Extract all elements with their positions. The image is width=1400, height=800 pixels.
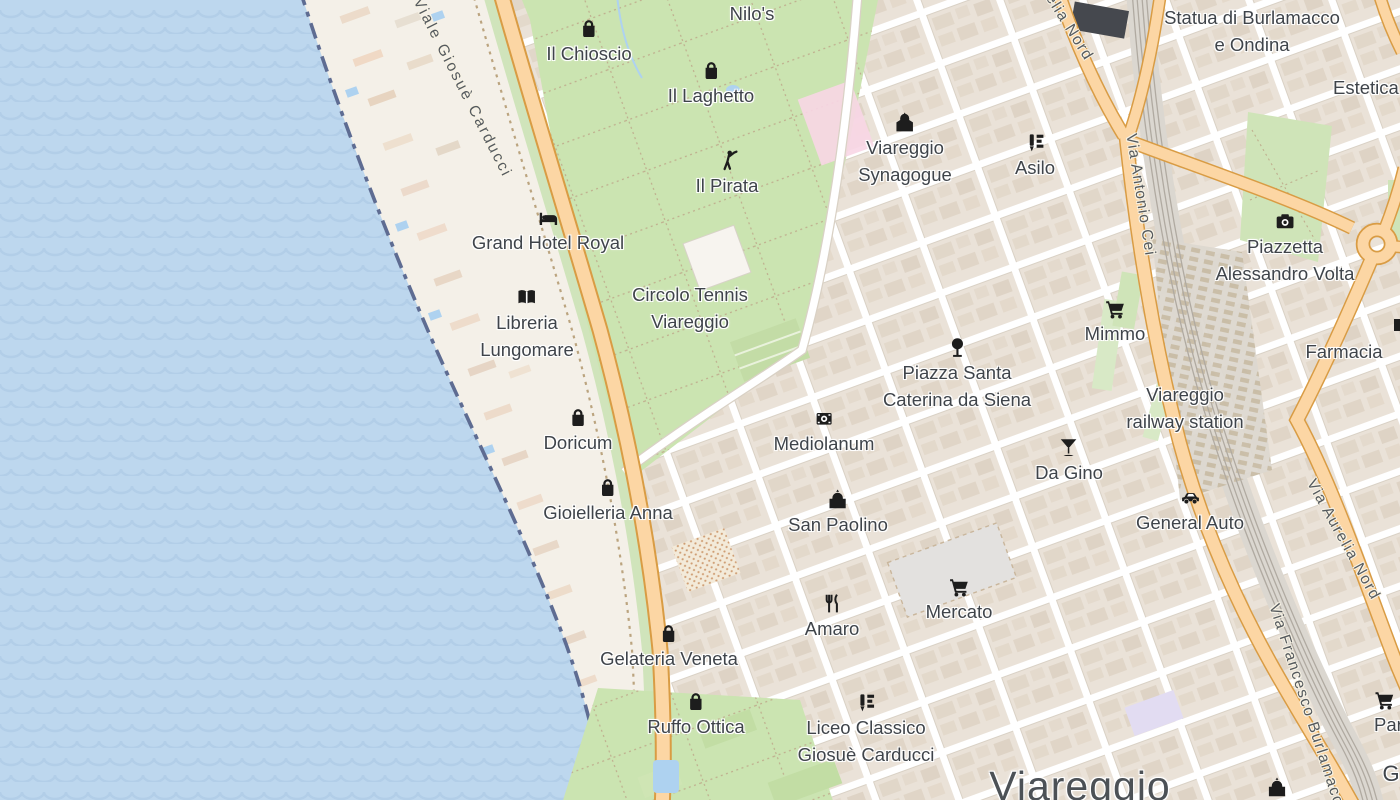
cart-icon	[1374, 689, 1395, 710]
road-label-via-antonio-cei: Via Antonio Cei	[1121, 132, 1158, 257]
shopping-bag-icon	[568, 407, 589, 428]
poi-line: Mediolanum	[774, 430, 875, 457]
poi-gelateria-veneta: Gelateria Veneta	[600, 623, 738, 672]
book-icon	[517, 287, 538, 308]
poi-line: Piazzetta	[1247, 233, 1323, 260]
poi-par-partial: Par	[1374, 689, 1400, 738]
poi-g-partial: G	[1382, 760, 1399, 787]
poi-piazza-caterina: Piazza SantaCaterina da Siena	[883, 337, 1031, 413]
poi-line: Farmacia	[1305, 338, 1382, 365]
road-label-via-francesco-burlamacchi: Via Francesco Burlamacchi	[1265, 602, 1352, 800]
poi-line: Il Chioscio	[546, 40, 631, 67]
poi-line: Gioielleria Anna	[543, 499, 673, 526]
poi-line: Asilo	[1015, 154, 1055, 181]
bank-icon	[814, 408, 835, 429]
church-icon	[1267, 777, 1288, 798]
poi-line: Par	[1374, 711, 1400, 738]
poi-gioielleria-anna: Gioielleria Anna	[543, 477, 673, 526]
poi-line: Piazza Santa	[902, 359, 1011, 386]
poi-line: Da Gino	[1035, 459, 1103, 486]
poi-line: G	[1382, 760, 1399, 787]
poi-church-bottom	[1267, 777, 1288, 799]
poi-mimmo: Mimmo	[1085, 298, 1146, 347]
poi-il-laghetto: Il Laghetto	[668, 60, 754, 109]
shopping-bag-icon	[658, 623, 679, 644]
tree-icon	[946, 337, 967, 358]
poi-line: e Ondina	[1214, 31, 1289, 58]
school-icon	[1024, 132, 1045, 153]
poi-line: Alessandro Volta	[1216, 260, 1355, 287]
poi-line: Liceo Classico	[806, 714, 925, 741]
road-label-viale-giosue-carducci: Viale Giosuè Carducci	[409, 0, 516, 181]
poi-da-gino: Da Gino	[1035, 437, 1103, 486]
poi-line: Synagogue	[858, 161, 952, 188]
map-labels-layer: Viareggio Nilo's Il Chioscio Il Laghetto…	[0, 0, 1400, 800]
shopping-bag-icon	[686, 691, 707, 712]
golfer-icon	[717, 150, 738, 171]
shopping-bag-icon	[598, 477, 619, 498]
poi-line: Grand Hotel Royal	[472, 229, 624, 256]
bed-icon	[538, 207, 559, 228]
road-label-via-aurelia-nord-right: Via Aurelia Nord	[1302, 476, 1384, 603]
poi-il-chioscio: Il Chioscio	[546, 18, 631, 67]
poi-line: San Paolino	[788, 511, 888, 538]
cart-icon	[1104, 298, 1125, 319]
road-label-via-aurelia-nord-top: Via Aurelia Nord	[1009, 0, 1096, 64]
poi-line: Mercato	[926, 598, 993, 625]
cart-icon	[948, 576, 969, 597]
poi-line: Viareggio	[1146, 381, 1224, 408]
poi-line: Estetica	[1333, 74, 1399, 101]
poi-ruffo-ottica: Ruffo Ottica	[647, 691, 744, 740]
poi-line: Il Pirata	[696, 172, 759, 199]
poi-line: Viareggio	[866, 134, 944, 161]
poi-line: General Auto	[1136, 509, 1244, 536]
poi-estetica: Estetica	[1333, 74, 1399, 101]
poi-line: Giosuè Carducci	[798, 741, 935, 768]
church-icon	[828, 489, 849, 510]
poi-line: Ruffo Ottica	[647, 713, 744, 740]
poi-mercato: Mercato	[926, 576, 993, 625]
poi-grand-hotel-royal: Grand Hotel Royal	[472, 207, 624, 256]
poi-line: Caterina da Siena	[883, 386, 1031, 413]
shopping-bag-icon	[579, 18, 600, 39]
poi-piazzetta-volta: PiazzettaAlessandro Volta	[1216, 211, 1355, 287]
map-canvas[interactable]: Viareggio Nilo's Il Chioscio Il Laghetto…	[0, 0, 1400, 800]
poi-statua-burlamacco: Statua di Burlamaccoe Ondina	[1164, 4, 1340, 58]
poi-liceo-carducci: Liceo ClassicoGiosuè Carducci	[798, 692, 935, 768]
poi-san-paolino: San Paolino	[788, 489, 888, 538]
poi-line: Il Laghetto	[668, 82, 754, 109]
restaurant-icon	[822, 593, 843, 614]
poi-line: Doricum	[544, 429, 613, 456]
poi-line: Libreria	[496, 309, 558, 336]
poi-line: Viareggio	[651, 308, 729, 335]
synagogue-icon	[895, 112, 916, 133]
poi-railway-station: Viareggiorailway station	[1126, 381, 1243, 435]
poi-doricum: Doricum	[544, 407, 613, 456]
poi-libreria-lungomare: LibreriaLungomare	[480, 287, 574, 363]
camera-icon	[1275, 211, 1296, 232]
shopping-bag-icon	[701, 60, 722, 81]
poi-nilos: Nilo's	[730, 0, 775, 27]
poi-asilo: Asilo	[1015, 132, 1055, 181]
school-icon	[855, 692, 876, 713]
poi-line: Mimmo	[1085, 320, 1146, 347]
poi-line: railway station	[1126, 408, 1243, 435]
poi-general-auto: General Auto	[1136, 487, 1244, 536]
poi-mediolanum: Mediolanum	[774, 408, 875, 457]
poi-viareggio-synagogue: ViareggioSynagogue	[858, 112, 952, 188]
poi-farmacia: Farmacia	[1305, 338, 1382, 365]
poi-line: Nilo's	[730, 0, 775, 27]
poi-amaro: Amaro	[805, 593, 860, 642]
poi-line: Statua di Burlamacco	[1164, 4, 1340, 31]
poi-circolo-tennis: Circolo TennisViareggio	[632, 281, 748, 335]
poi-line: Circolo Tennis	[632, 281, 748, 308]
poi-line: Gelateria Veneta	[600, 645, 738, 672]
car-icon	[1180, 487, 1201, 508]
poi-il-pirata: Il Pirata	[696, 150, 759, 199]
poi-line: Lungomare	[480, 336, 574, 363]
cocktail-icon	[1059, 437, 1080, 458]
city-label: Viareggio	[989, 763, 1171, 800]
poi-line: Amaro	[805, 615, 860, 642]
